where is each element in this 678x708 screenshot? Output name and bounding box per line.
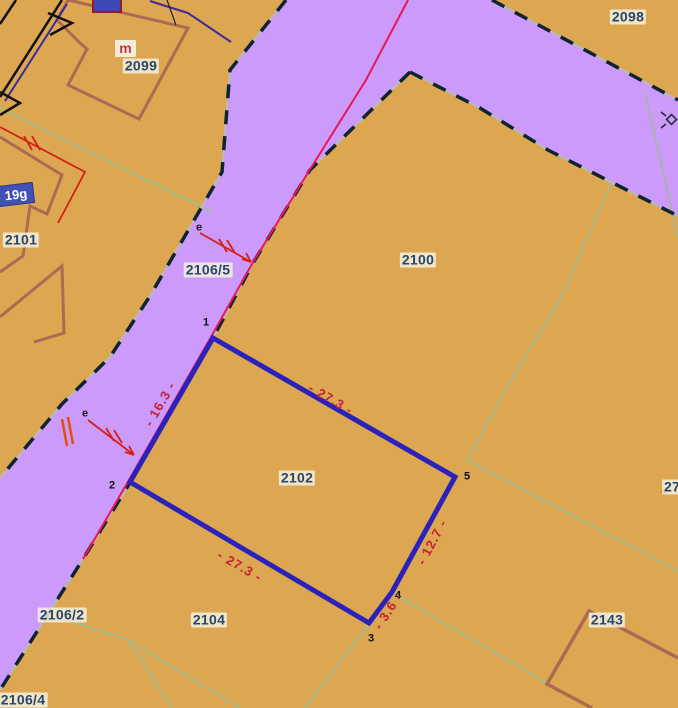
vertex-label-5: 5 xyxy=(464,472,470,483)
map-geometry-layer xyxy=(0,0,678,708)
vertex-label-3: 3 xyxy=(368,634,374,645)
vertex-label-2: 2 xyxy=(109,481,115,492)
parcel-label-2102: 2102 xyxy=(279,471,315,486)
utility-e-mark-upper: e xyxy=(196,223,202,234)
cadastral-map-canvas[interactable]: 2098 2099 2101 2100 2102 2104 2143 2106/… xyxy=(0,0,678,708)
parcel-label-2143: 2143 xyxy=(589,613,625,628)
building-use-mark-m: m xyxy=(115,40,136,57)
parcel-label-2098: 2098 xyxy=(610,10,646,25)
parcel-label-2106-5: 2106/5 xyxy=(184,263,233,278)
parcel-label-27-clipped: 27 xyxy=(662,480,678,495)
utility-e-mark-lower: e xyxy=(82,409,88,420)
parcel-label-2106-2: 2106/2 xyxy=(38,608,87,623)
vertex-label-1: 1 xyxy=(203,318,209,329)
house-number-badge-19g: 19g xyxy=(0,182,35,207)
parcel-label-2104: 2104 xyxy=(191,613,227,628)
parcel-label-2100: 2100 xyxy=(400,253,436,268)
parcel-label-2106-4: 2106/4 xyxy=(0,693,47,708)
parcel-label-2099: 2099 xyxy=(123,59,159,74)
parcel-label-2101: 2101 xyxy=(3,233,39,248)
clipped-top-badge xyxy=(92,0,122,13)
